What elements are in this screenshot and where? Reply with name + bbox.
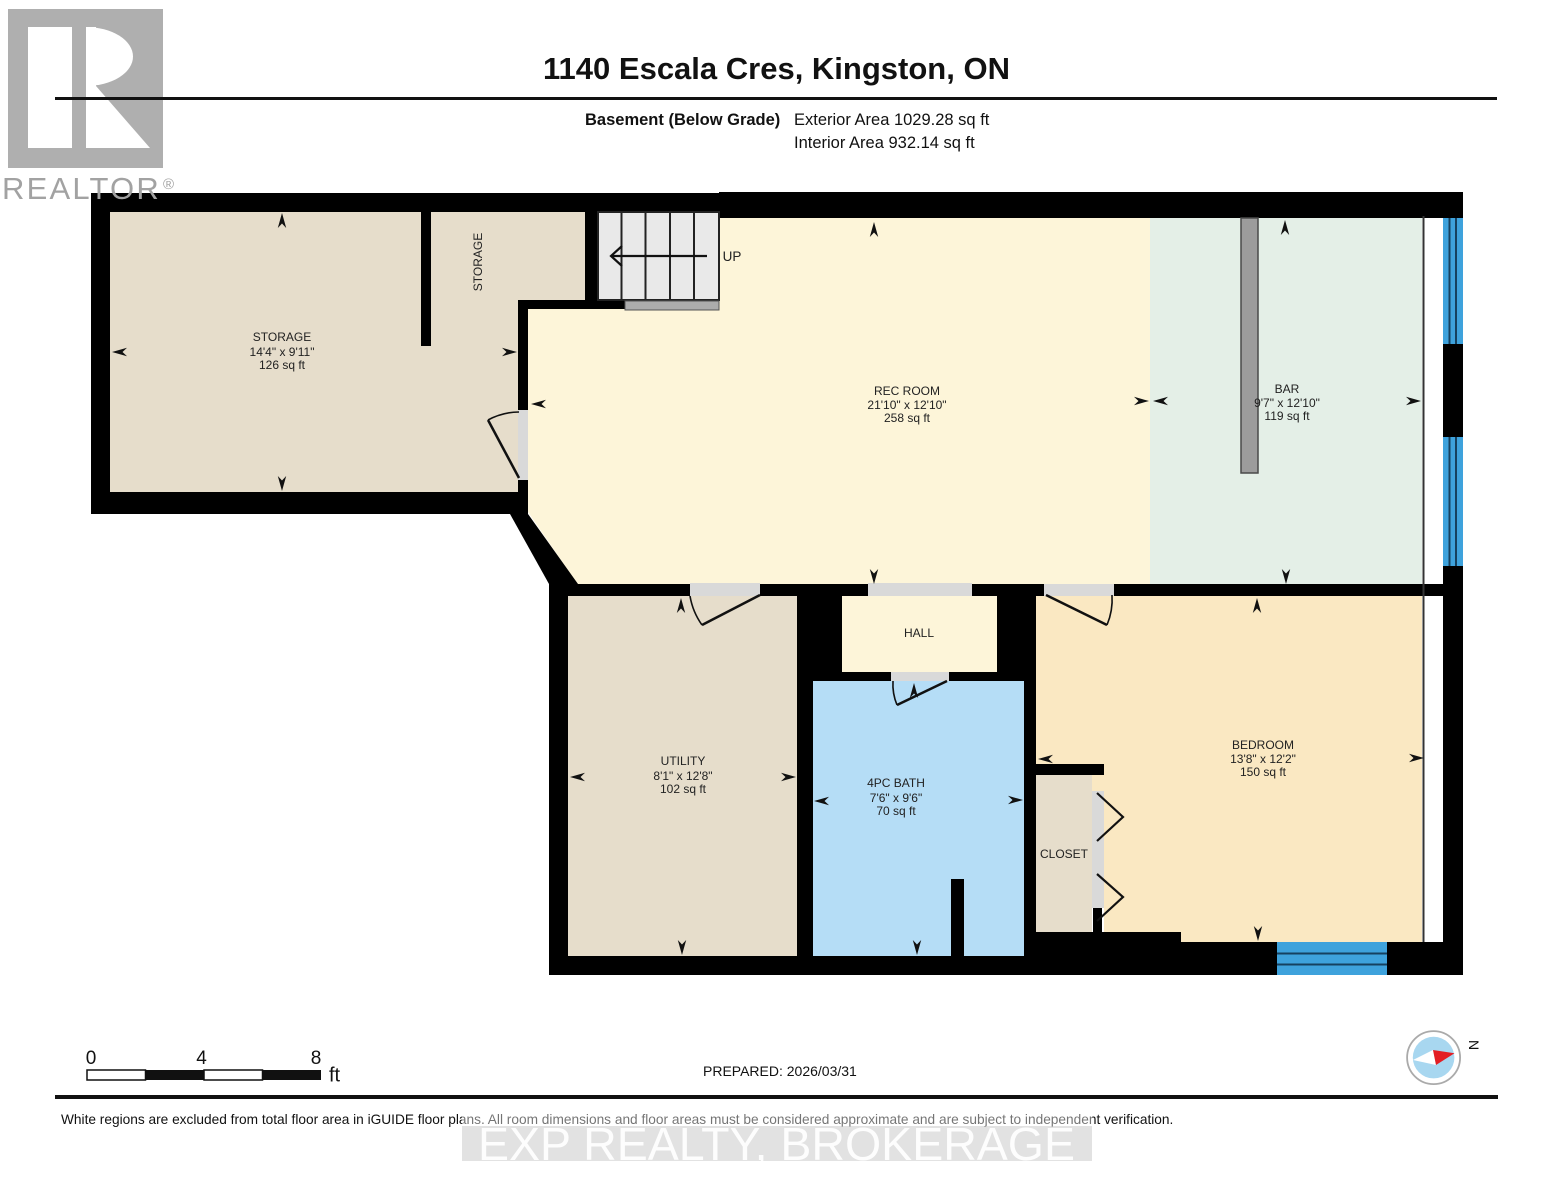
- svg-text:8'1" x 12'8": 8'1" x 12'8": [653, 769, 712, 783]
- svg-text:BEDROOM: BEDROOM: [1232, 738, 1294, 752]
- svg-text:150 sq ft: 150 sq ft: [1240, 765, 1287, 779]
- svg-text:STORAGE: STORAGE: [253, 330, 311, 344]
- svg-text:N: N: [1466, 1040, 1482, 1050]
- svg-text:126 sq ft: 126 sq ft: [259, 358, 306, 372]
- svg-text:CLOSET: CLOSET: [1040, 847, 1089, 861]
- svg-text:HALL: HALL: [904, 626, 934, 640]
- svg-text:UP: UP: [723, 249, 742, 264]
- svg-text:70 sq ft: 70 sq ft: [876, 804, 916, 818]
- svg-text:258 sq ft: 258 sq ft: [884, 411, 931, 425]
- svg-text:13'8" x 12'2": 13'8" x 12'2": [1230, 752, 1296, 766]
- svg-text:119 sq ft: 119 sq ft: [1264, 409, 1310, 423]
- svg-text:BAR: BAR: [1275, 382, 1300, 396]
- svg-text:9'7" x 12'10": 9'7" x 12'10": [1254, 396, 1320, 410]
- svg-text:8: 8: [311, 1048, 322, 1069]
- svg-text:7'6" x 9'6": 7'6" x 9'6": [870, 791, 922, 805]
- svg-text:ft: ft: [329, 1065, 341, 1087]
- svg-text:REALTOR: REALTOR: [2, 171, 161, 206]
- svg-text:UTILITY: UTILITY: [661, 754, 706, 768]
- svg-text:102 sq ft: 102 sq ft: [660, 782, 707, 796]
- svg-text:0: 0: [86, 1048, 97, 1069]
- svg-text:STORAGE: STORAGE: [471, 233, 485, 291]
- svg-text:REC ROOM: REC ROOM: [874, 384, 940, 398]
- svg-text:®: ®: [163, 176, 174, 193]
- svg-text:14'4" x 9'11": 14'4" x 9'11": [250, 345, 315, 359]
- svg-text:21'10" x 12'10": 21'10" x 12'10": [867, 398, 946, 412]
- svg-text:4: 4: [196, 1048, 207, 1069]
- svg-text:4PC BATH: 4PC BATH: [867, 776, 925, 790]
